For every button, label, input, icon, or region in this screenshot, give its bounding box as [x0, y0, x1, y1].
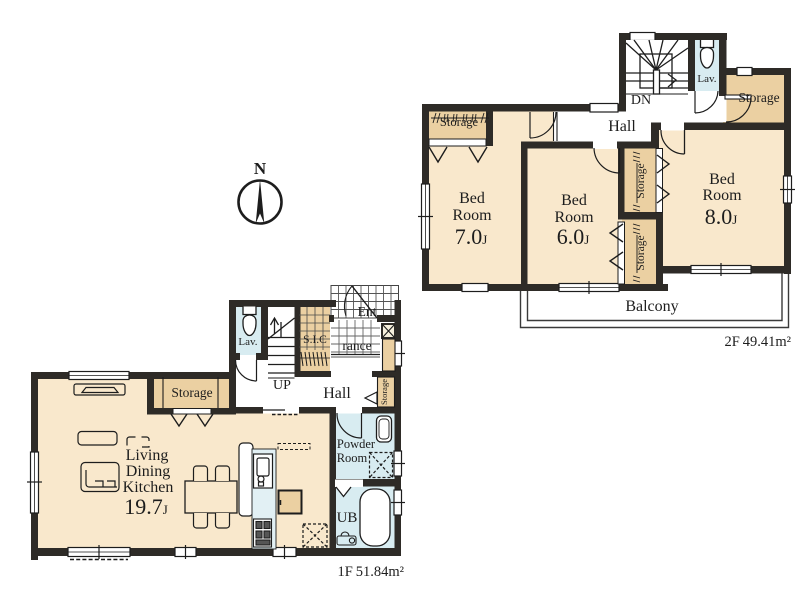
svg-text:Storage: Storage — [440, 115, 479, 129]
svg-text:Room: Room — [702, 187, 742, 204]
svg-text:Hall: Hall — [323, 385, 351, 402]
svg-text:Hall: Hall — [608, 118, 636, 135]
svg-text:Powder: Powder — [337, 437, 376, 451]
svg-text:N: N — [254, 159, 267, 178]
svg-text:UP: UP — [273, 378, 291, 393]
svg-text:19.7J: 19.7J — [124, 494, 168, 519]
svg-text:DN: DN — [631, 93, 651, 108]
svg-text:Room: Room — [337, 451, 368, 465]
svg-text:UB: UB — [337, 510, 358, 526]
svg-text:S.I.C: S.I.C — [303, 334, 327, 346]
svg-text:2F 49.41m²: 2F 49.41m² — [725, 334, 792, 350]
svg-text:Bed: Bed — [459, 190, 485, 207]
svg-text:Lav.: Lav. — [238, 336, 257, 348]
svg-text:Storage: Storage — [379, 379, 389, 405]
svg-text:Storage: Storage — [171, 385, 212, 400]
svg-text:Ent: Ent — [358, 304, 377, 319]
svg-text:Storage: Storage — [635, 163, 647, 198]
svg-text:Balcony: Balcony — [625, 298, 678, 315]
svg-text:Room: Room — [452, 207, 492, 224]
svg-text:1F 51.84m²: 1F 51.84m² — [338, 564, 405, 580]
svg-text:Living: Living — [126, 447, 169, 464]
svg-text:rance: rance — [342, 338, 371, 353]
svg-text:Bed: Bed — [709, 171, 735, 188]
svg-text:Storage: Storage — [635, 235, 647, 270]
svg-text:Lav.: Lav. — [697, 73, 716, 85]
svg-text:Bed: Bed — [561, 192, 587, 209]
svg-text:Dining: Dining — [126, 463, 170, 480]
svg-text:Storage: Storage — [738, 90, 779, 105]
